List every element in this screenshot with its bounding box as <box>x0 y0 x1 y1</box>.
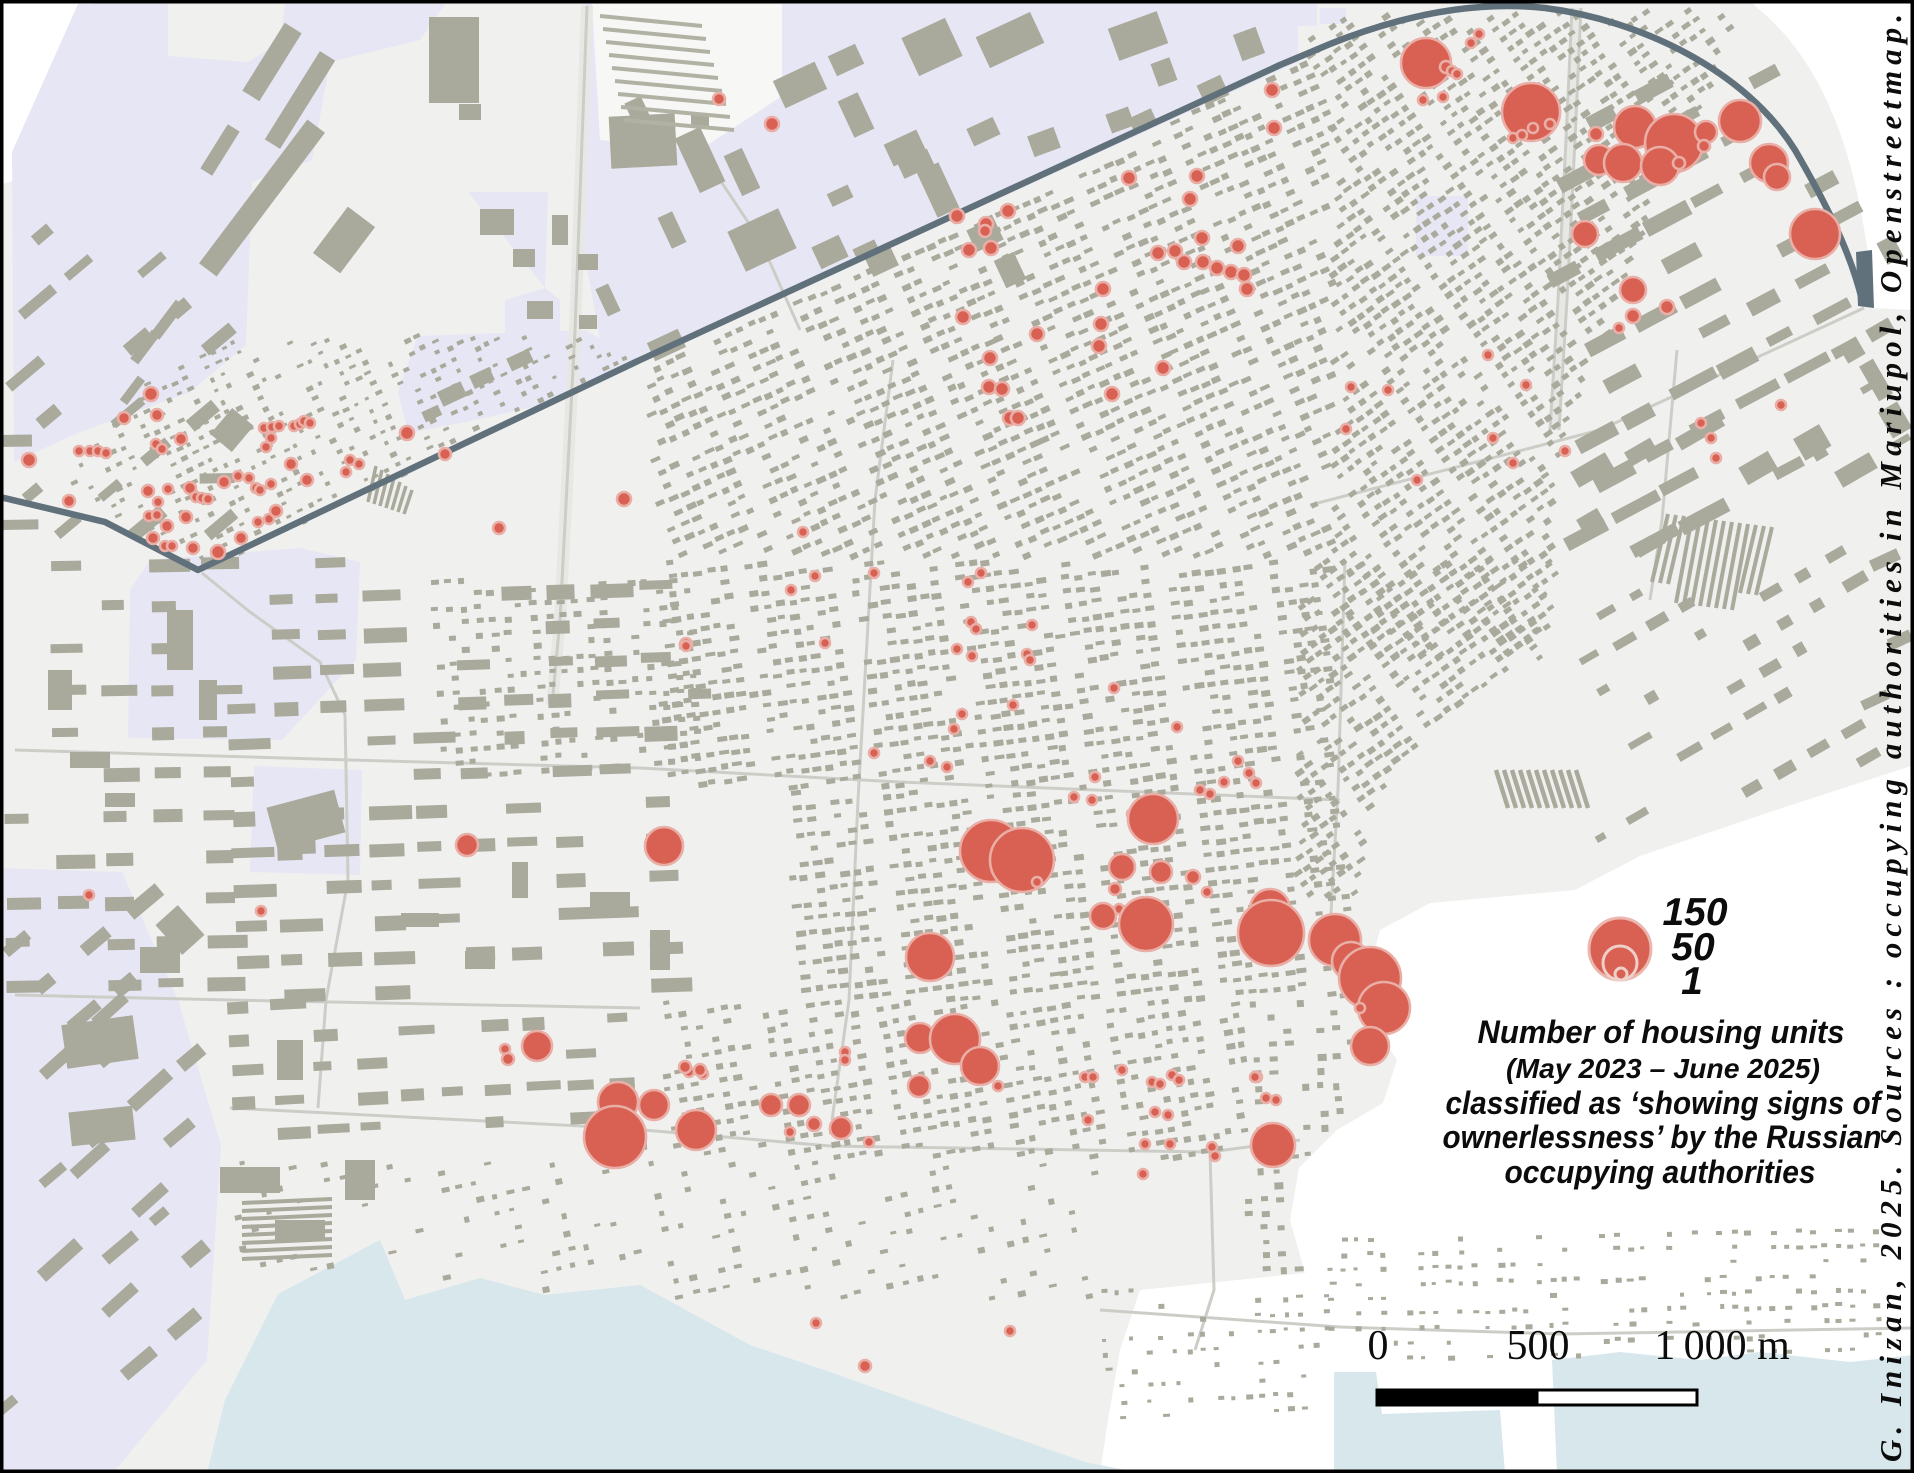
svg-text:1: 1 <box>1681 960 1703 1003</box>
svg-text:ownerlessness’ by the Russian: ownerlessness’ by the Russian <box>1443 1119 1882 1155</box>
svg-text:1 000 m: 1 000 m <box>1654 1323 1790 1369</box>
svg-text:0: 0 <box>1368 1323 1389 1369</box>
svg-text:500: 500 <box>1507 1323 1570 1369</box>
svg-text:(May 2023 – June 2025): (May 2023 – June 2025) <box>1506 1053 1820 1084</box>
svg-text:G. Inizan, 2025. Sources : occ: G. Inizan, 2025. Sources : occupying aut… <box>1873 14 1908 1462</box>
svg-text:classified as ‘showing signs o: classified as ‘showing signs of <box>1446 1085 1884 1121</box>
svg-text:Number of housing units: Number of housing units <box>1478 1014 1845 1050</box>
svg-text:occupying authorities: occupying authorities <box>1505 1154 1816 1190</box>
